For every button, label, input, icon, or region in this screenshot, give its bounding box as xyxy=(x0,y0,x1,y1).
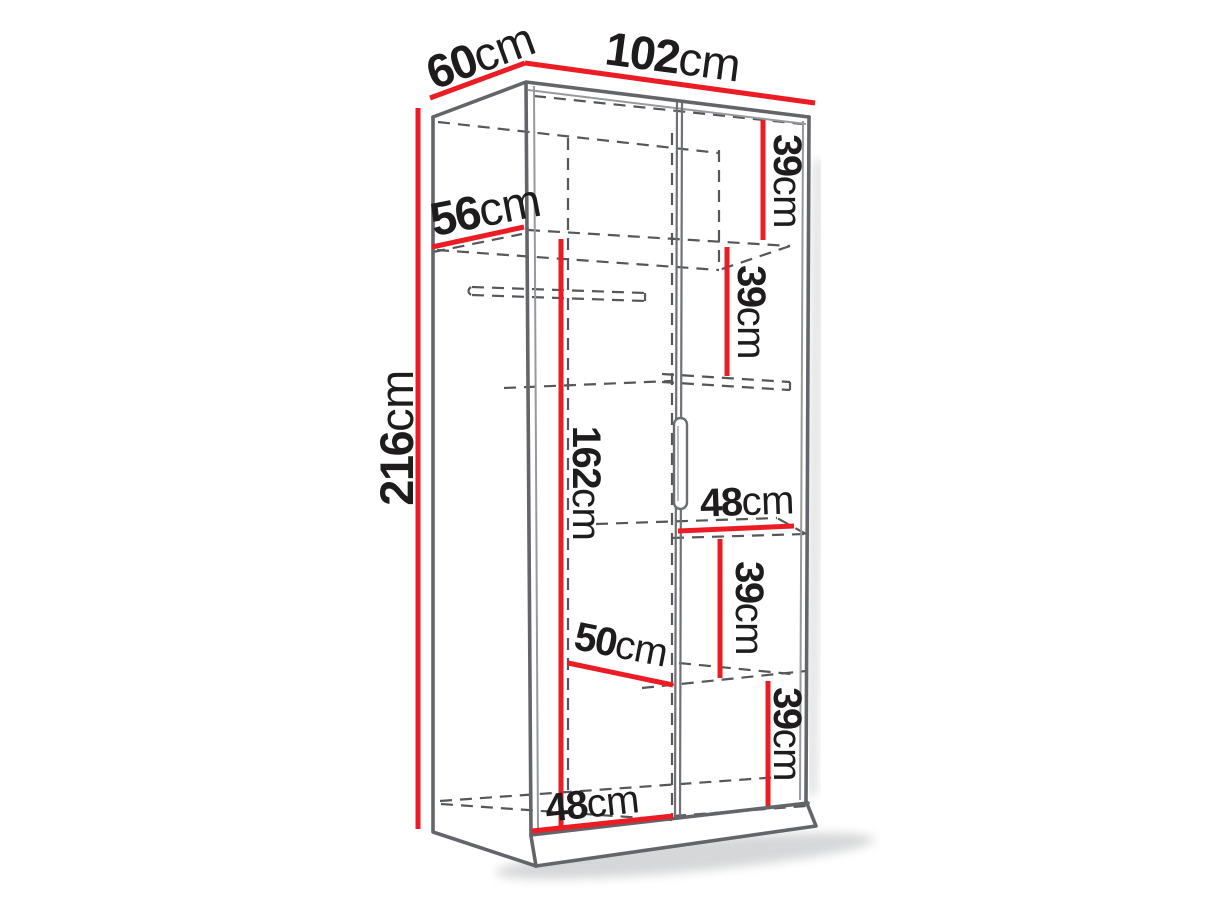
dimension-label-height: 216cm xyxy=(370,370,423,506)
dimension-label-compartment-3: 39cm xyxy=(727,561,771,655)
wardrobe-dimension-diagram: 60cm 102cm 216cm 56cm 39cm 39cm 162cm 48… xyxy=(0,0,1214,911)
dimension-label-width: 102cm xyxy=(602,21,743,91)
dimension-label-middle-shelf-width: 48cm xyxy=(699,478,794,525)
dimension-label-compartment-1: 39cm xyxy=(765,134,809,228)
door-handle xyxy=(674,418,687,509)
dimension-label-hanging-height: 162cm xyxy=(564,426,608,541)
dimension-label-compartment-4: 39cm xyxy=(765,687,809,781)
diagram-canvas: 60cm 102cm 216cm 56cm 39cm 39cm 162cm 48… xyxy=(0,0,1214,911)
dimension-label-compartment-2: 39cm xyxy=(729,265,773,359)
